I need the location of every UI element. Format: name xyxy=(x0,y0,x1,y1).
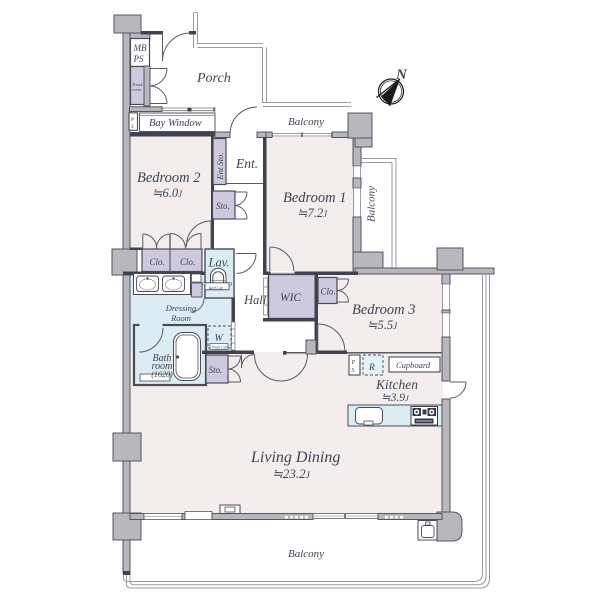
svg-text:Kitchen: Kitchen xyxy=(375,377,418,392)
svg-text:Balcony: Balcony xyxy=(288,116,324,128)
svg-text:≒3.9J: ≒3.9J xyxy=(381,392,410,404)
svg-text:Living Dining: Living Dining xyxy=(250,449,340,466)
svg-text:MB: MB xyxy=(133,43,147,53)
svg-text:≒7.2J: ≒7.2J xyxy=(297,206,328,220)
svg-text:Bay Window: Bay Window xyxy=(149,118,202,129)
svg-text:≒23.2J: ≒23.2J xyxy=(272,466,311,481)
svg-text:N: N xyxy=(395,67,408,83)
svg-text:≒5.5J: ≒5.5J xyxy=(367,318,398,332)
svg-text:(1620): (1620) xyxy=(151,370,173,379)
svg-text:S: S xyxy=(352,368,355,374)
svg-text:Ent.: Ent. xyxy=(235,156,258,171)
svg-text:Clo.: Clo. xyxy=(321,287,336,297)
svg-text:Wash Cab: Wash Cab xyxy=(212,346,227,350)
svg-text:Clo.: Clo. xyxy=(150,257,165,267)
svg-text:Bedroom 3: Bedroom 3 xyxy=(352,302,416,318)
svg-text:PS: PS xyxy=(133,54,144,64)
svg-text:Porch: Porch xyxy=(196,71,231,86)
svg-text:Lav.: Lav. xyxy=(208,256,230,270)
svg-text:R: R xyxy=(368,363,375,373)
svg-text:Cupboard: Cupboard xyxy=(396,360,431,370)
svg-text:room: room xyxy=(132,87,142,92)
svg-text:WIC: WIC xyxy=(280,292,301,304)
svg-text:Bedroom 1: Bedroom 1 xyxy=(283,190,347,206)
svg-text:Hall: Hall xyxy=(243,293,267,307)
svg-text:Half Cab: Half Cab xyxy=(208,285,224,290)
svg-text:Bedroom 2: Bedroom 2 xyxy=(137,170,201,186)
svg-text:Balcony: Balcony xyxy=(288,548,324,560)
svg-text:Balcony: Balcony xyxy=(366,186,378,222)
svg-text:≒6.0J: ≒6.0J xyxy=(152,186,183,200)
svg-text:P: P xyxy=(351,360,356,366)
svg-text:P: P xyxy=(130,118,134,123)
svg-text:Sto.: Sto. xyxy=(209,365,223,375)
svg-text:Ent Sto.: Ent Sto. xyxy=(215,153,225,181)
svg-text:Clo.: Clo. xyxy=(180,257,195,267)
svg-text:Sto.: Sto. xyxy=(216,201,230,211)
